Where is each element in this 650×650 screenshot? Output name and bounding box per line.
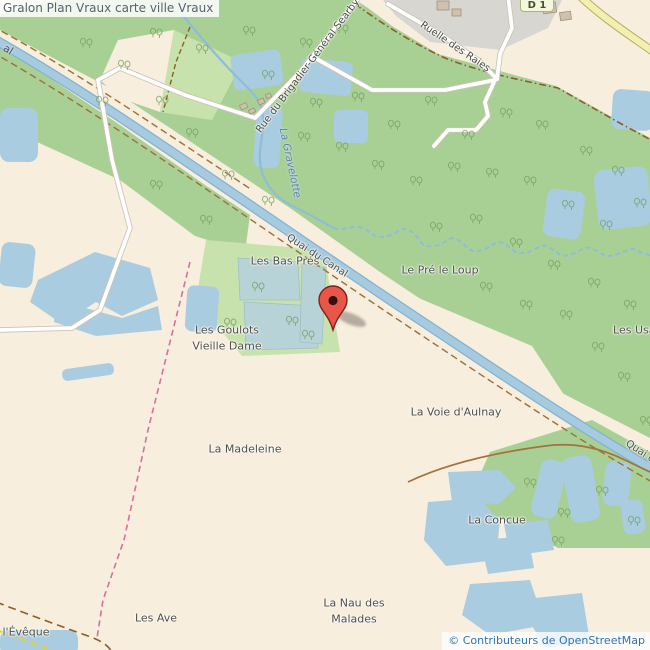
attribution-link[interactable]: © Contributeurs de OpenStreetMap <box>442 632 650 650</box>
map-graphics <box>0 0 650 650</box>
road-shield-d1: D 1 <box>520 0 554 12</box>
page-title: Gralon Plan Vraux carte ville Vraux <box>0 0 219 17</box>
map-canvas[interactable]: Les Bas Prés Le Pré le Loup Les Goulots … <box>0 0 650 650</box>
